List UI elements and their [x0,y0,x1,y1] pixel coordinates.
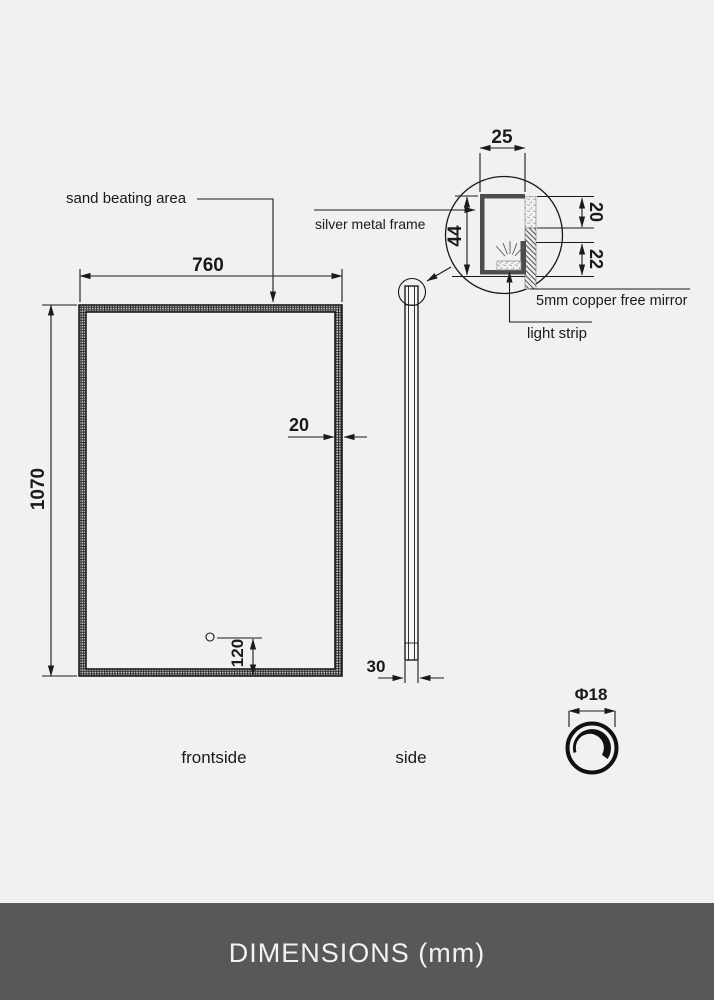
footer-title: DIMENSIONS (mm) [229,938,485,968]
front-view-label: frontside [181,748,246,767]
front-view: 760 1070 20 120 sand beating area fronts… [28,190,367,767]
side-thickness-dimension [378,661,444,683]
frame-label: silver metal frame [315,216,426,232]
detail-depth-dimension [480,148,525,192]
light-rays-icon [496,241,524,256]
front-width-value: 760 [192,255,224,276]
side-thickness-value: 30 [367,657,386,676]
sand-area-label: sand beating area [66,190,187,207]
light-strip-icon [497,261,521,270]
sensor-offset-value: 120 [228,639,247,667]
detail-sand-strip [525,197,536,229]
front-frame-width-value: 20 [289,415,309,435]
detail-sand-return-value: 20 [586,202,606,222]
dimensions-diagram: 760 1070 20 120 sand beating area fronts… [0,0,714,1000]
footer-bar: DIMENSIONS (mm) [0,903,714,1000]
dimmer-knob: Φ18 [568,685,617,773]
detail-depth-value: 25 [491,127,513,148]
detail-height-value: 44 [445,225,466,247]
light-strip-label: light strip [527,325,587,342]
detail-mirror-glass [525,228,536,289]
technical-drawing-page: 760 1070 20 120 sand beating area fronts… [0,0,714,1000]
front-mirror-area [86,312,335,669]
knob-dial-crescent-icon [573,729,611,759]
side-view-label: side [395,748,426,767]
sand-area-leader [197,199,273,302]
detail-view: 25 44 20 22 silver metal frame 5mm coppe… [314,127,690,342]
mirror-label: 5mm copper free mirror [536,293,688,309]
front-height-value: 1070 [28,468,49,510]
detail-lower-return-value: 22 [586,249,606,269]
knob-diameter-value: Φ18 [575,685,608,704]
side-view: 30 side [367,267,451,767]
detail-callout-leader [427,267,451,281]
